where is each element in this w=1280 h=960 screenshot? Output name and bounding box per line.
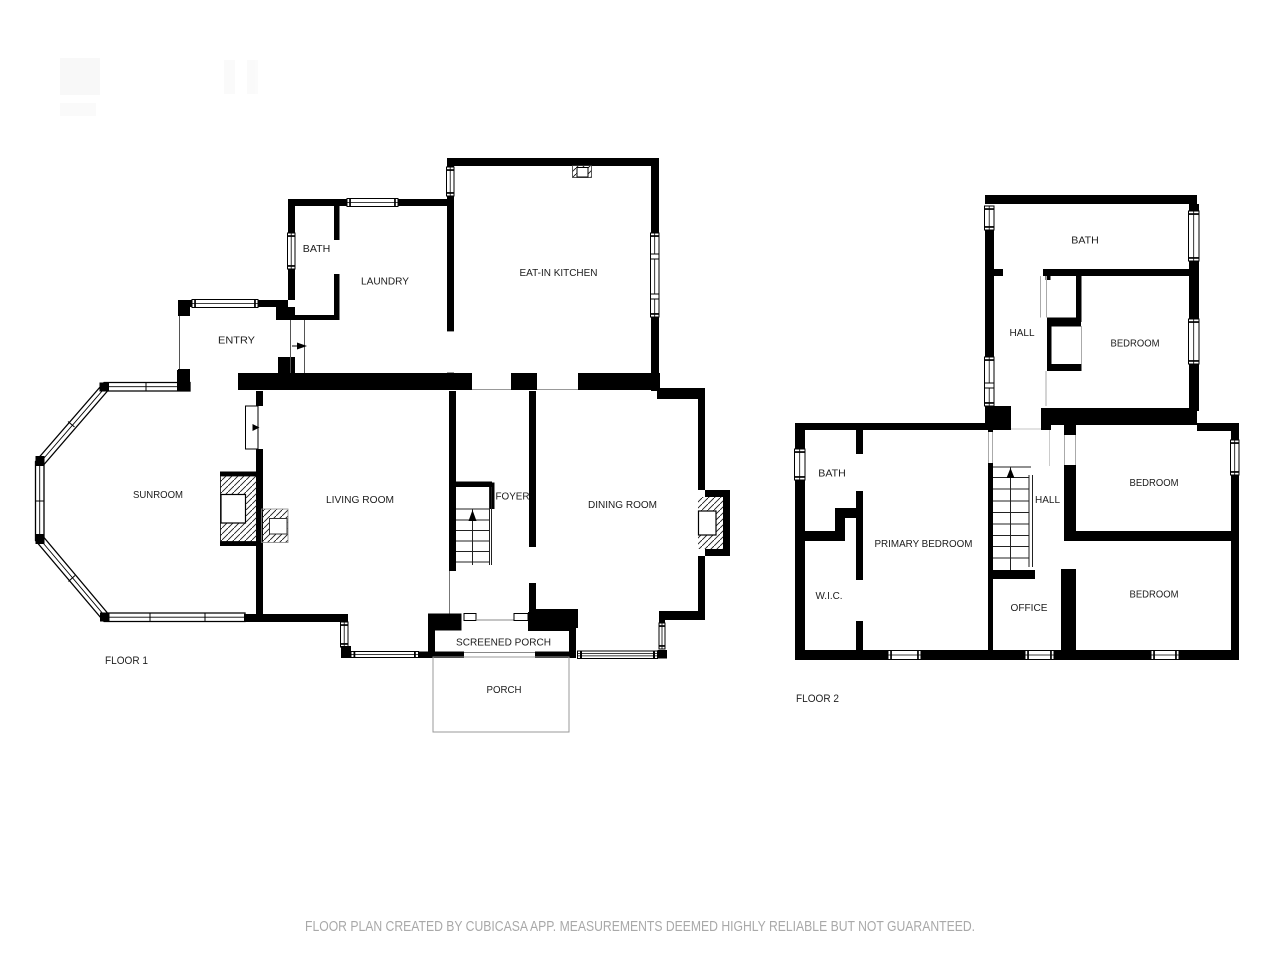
svg-text:FLOOR 2: FLOOR 2 (796, 693, 839, 705)
svg-text:OFFICE: OFFICE (1011, 602, 1048, 614)
svg-text:HALL: HALL (1035, 494, 1060, 506)
svg-text:FOYER: FOYER (496, 491, 530, 503)
svg-text:BATH: BATH (303, 243, 331, 255)
svg-text:FLOOR 1: FLOOR 1 (105, 655, 148, 667)
svg-text:BATH: BATH (1071, 235, 1099, 247)
svg-text:BEDROOM: BEDROOM (1130, 477, 1179, 489)
svg-text:EAT-IN KITCHEN: EAT-IN KITCHEN (520, 267, 598, 279)
svg-text:PRIMARY BEDROOM: PRIMARY BEDROOM (875, 538, 973, 550)
svg-text:ENTRY: ENTRY (218, 335, 255, 347)
svg-text:PORCH: PORCH (487, 684, 522, 696)
svg-text:SCREENED PORCH: SCREENED PORCH (456, 637, 551, 649)
svg-text:DINING ROOM: DINING ROOM (588, 499, 657, 511)
svg-text:HALL: HALL (1010, 327, 1035, 339)
svg-text:LAUNDRY: LAUNDRY (361, 276, 409, 288)
svg-text:W.I.C.: W.I.C. (816, 590, 843, 602)
svg-text:SUNROOM: SUNROOM (133, 489, 183, 501)
svg-text:BEDROOM: BEDROOM (1111, 338, 1160, 350)
svg-text:BEDROOM: BEDROOM (1130, 589, 1179, 601)
svg-text:FLOOR PLAN CREATED BY CUBICASA: FLOOR PLAN CREATED BY CUBICASA APP. MEAS… (305, 919, 975, 935)
svg-text:BATH: BATH (818, 468, 846, 480)
svg-text:LIVING ROOM: LIVING ROOM (326, 494, 394, 506)
